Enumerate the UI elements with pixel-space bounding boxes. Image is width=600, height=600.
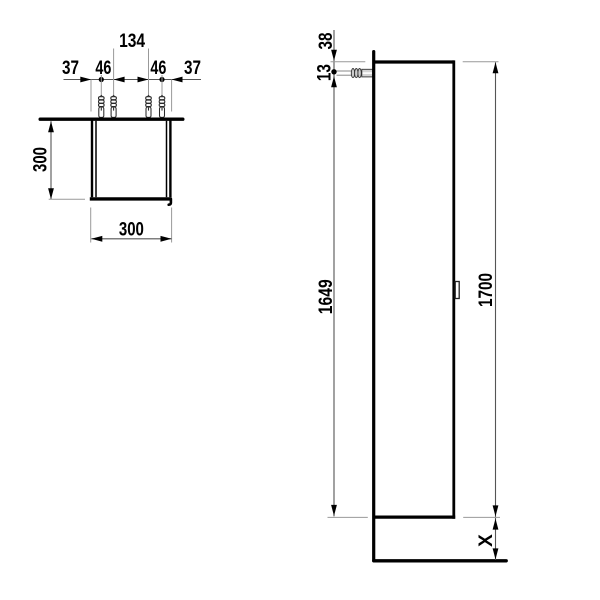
svg-text:13: 13 [315, 64, 336, 81]
svg-text:134: 134 [119, 31, 145, 52]
svg-text:37: 37 [184, 58, 201, 79]
svg-text:300: 300 [119, 220, 144, 241]
svg-text:38: 38 [316, 33, 337, 50]
svg-text:1700: 1700 [476, 273, 497, 307]
svg-text:300: 300 [30, 147, 51, 172]
svg-text:46: 46 [150, 58, 166, 79]
svg-text:37: 37 [62, 58, 79, 79]
svg-text:X: X [476, 534, 497, 547]
svg-text:1649: 1649 [316, 279, 337, 314]
svg-text:46: 46 [95, 58, 111, 79]
